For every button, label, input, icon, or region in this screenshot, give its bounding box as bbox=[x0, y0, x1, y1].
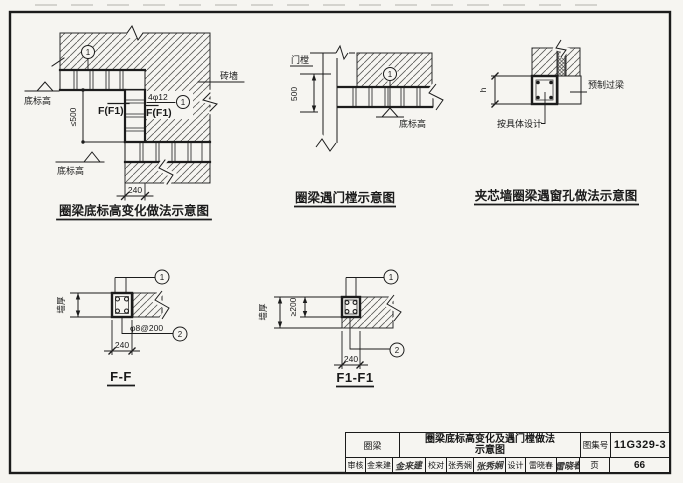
precast-lintel-label: 预制过梁 bbox=[588, 79, 624, 90]
section-f1f1: 墙厚 ≥200 1 2 bbox=[258, 270, 404, 387]
title-block-row-1: 圈梁 圈梁底标高变化及遇门樘做法 示意图 图集号 11G329-3 bbox=[346, 433, 669, 457]
callout-number: 2 bbox=[395, 346, 400, 355]
section-ff-title: F-F bbox=[110, 369, 132, 384]
bottom-elevation-mark-upper: 底标高 bbox=[24, 82, 59, 106]
checker-name: 张秀娴 bbox=[447, 458, 474, 472]
dim-text: 240 bbox=[344, 354, 358, 364]
wall-leaf-hatch bbox=[566, 48, 580, 76]
rebar-note: 4φ12 bbox=[148, 92, 168, 102]
bottom-elev-label: 底标高 bbox=[24, 95, 51, 106]
callout-1: 1 bbox=[115, 270, 169, 293]
drawing-sheet: 底标高 底标高 ≤500 240 4φ12 1 bbox=[0, 0, 683, 483]
section-ff: 墙厚 1 φ8@200 2 240 F-F bbox=[56, 270, 187, 386]
dim-text: ≤500 bbox=[68, 107, 78, 126]
callout-number: 1 bbox=[388, 70, 393, 79]
wall-thickness-label: 墙厚 bbox=[258, 303, 268, 321]
review-label: 审核 bbox=[346, 458, 366, 472]
dim-240: 240 bbox=[117, 184, 153, 200]
wall-leaf-hatch bbox=[532, 48, 557, 76]
diagram1-title: 圈梁底标高变化做法示意图 bbox=[59, 203, 209, 218]
sheet-title-line1: 圈梁底标高变化及遇门樘做法 bbox=[425, 434, 555, 445]
door-frame-label: 门樘 bbox=[291, 54, 309, 65]
section-mark-left: F(F1) bbox=[98, 105, 124, 117]
reviewer-name: 金来建 bbox=[366, 458, 393, 472]
diagram3-title: 夹芯墙圈梁遇窗孔做法示意图 bbox=[475, 188, 638, 203]
wall-thickness-label: 墙厚 bbox=[56, 296, 66, 314]
beam-section bbox=[342, 297, 360, 317]
signature: 张秀娴 bbox=[476, 458, 504, 472]
precast-lintel bbox=[558, 76, 581, 104]
sheet-title-cell: 圈梁底标高变化及遇门樘做法 示意图 bbox=[400, 433, 581, 457]
upper-ring-beam bbox=[60, 70, 145, 90]
signature: 雷晓春 bbox=[557, 458, 580, 472]
design-label: 设计 bbox=[506, 458, 526, 472]
signature: 金来建 bbox=[395, 458, 423, 472]
page-label: 页 bbox=[580, 458, 610, 472]
designer-name: 雷晓春 bbox=[526, 458, 557, 472]
ring-beam bbox=[337, 87, 433, 107]
checker-signature: 张秀娴 bbox=[474, 458, 506, 472]
dim-wall-thickness: 墙厚 bbox=[258, 297, 342, 328]
dim-text: 240 bbox=[128, 185, 142, 195]
check-label: 校对 bbox=[426, 458, 447, 472]
section-f1f1-title: F1-F1 bbox=[336, 370, 373, 385]
atlas-number-value: 11G329-3 bbox=[611, 433, 669, 457]
page-number: 66 bbox=[610, 458, 669, 472]
diagram-sandwich-wall-window: h 预制过梁 按具体设计 夹芯墙圈梁遇窗孔做法示意图 bbox=[474, 40, 639, 205]
drawing-canvas: 底标高 底标高 ≤500 240 4φ12 1 bbox=[0, 0, 683, 483]
dim-text: ≥200 bbox=[288, 297, 298, 316]
bottom-elev-label: 底标高 bbox=[399, 118, 426, 129]
atlas-number-label: 图集号 bbox=[581, 433, 611, 457]
designer-signature: 雷晓春 bbox=[557, 458, 580, 472]
bottom-elevation-mark: 底标高 bbox=[376, 108, 426, 129]
callout-number: 2 bbox=[178, 330, 183, 339]
callout-1: 1 bbox=[346, 270, 398, 297]
diagram2-title: 圈梁遇门樘示意图 bbox=[295, 190, 395, 205]
dim-beam-200: ≥200 bbox=[288, 297, 342, 317]
elevation-triangle-icon bbox=[382, 108, 398, 117]
title-block: 圈梁 圈梁底标高变化及遇门樘做法 示意图 图集号 11G329-3 审核 金来建… bbox=[345, 432, 670, 473]
dim-500: 500 bbox=[289, 74, 331, 112]
dim-text: h bbox=[478, 87, 488, 92]
callout-1-mid: 1 bbox=[177, 96, 190, 109]
section-mark-right: F(F1) bbox=[146, 107, 172, 119]
dim-wall-thickness: 墙厚 bbox=[56, 293, 112, 317]
bottom-elev-label: 底标高 bbox=[57, 165, 84, 176]
callout-number: 1 bbox=[86, 48, 91, 57]
callout-number: 1 bbox=[160, 273, 165, 282]
per-design-label: 按具体设计 bbox=[497, 118, 542, 129]
stirrup-note: φ8@200 bbox=[130, 323, 163, 333]
category-cell: 圈梁 bbox=[346, 433, 400, 457]
title-block-row-2: 审核 金来建 金来建 校对 张秀娴 张秀娴 设计 雷晓春 雷晓春 页 66 bbox=[346, 457, 669, 472]
elevation-triangle-icon bbox=[37, 82, 53, 91]
ring-beam-section bbox=[532, 76, 557, 104]
step-column-beam bbox=[125, 90, 145, 142]
diagram-ring-beam-elevation-change: 底标高 底标高 ≤500 240 4φ12 1 bbox=[24, 26, 244, 220]
callout-number: 1 bbox=[389, 273, 394, 282]
dim-240: 240 bbox=[334, 331, 368, 369]
brick-wall-label: 砖墙 bbox=[220, 70, 238, 81]
sheet-title-line2: 示意图 bbox=[475, 445, 505, 456]
reviewer-signature: 金来建 bbox=[393, 458, 426, 472]
beam-section bbox=[112, 293, 132, 317]
callout-number: 1 bbox=[181, 98, 186, 107]
dim-text: 240 bbox=[115, 340, 129, 350]
diagram-ring-beam-at-door-frame: 门樘 500 1 底标高 圈梁遇门樘示意图 bbox=[289, 46, 443, 207]
dim-h: h bbox=[478, 73, 532, 108]
dim-text: 500 bbox=[289, 87, 299, 101]
